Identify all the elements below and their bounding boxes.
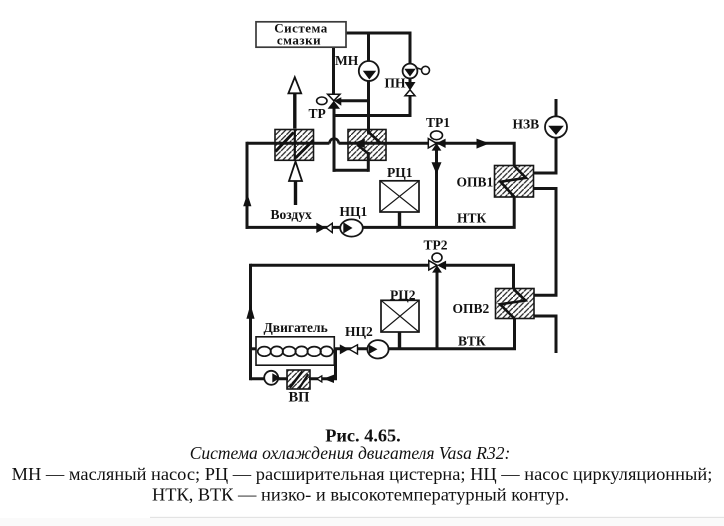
svg-text:НЗВ: НЗВ bbox=[513, 117, 540, 132]
svg-text:НЦ1: НЦ1 bbox=[340, 204, 368, 219]
svg-text:ОПВ1: ОПВ1 bbox=[457, 175, 494, 190]
svg-text:НТК: НТК bbox=[457, 211, 487, 226]
svg-text:МН: МН bbox=[335, 53, 359, 68]
svg-text:МН — масляный насос; РЦ — расш: МН — масляный насос; РЦ — расширительная… bbox=[12, 464, 713, 484]
svg-text:ПН: ПН bbox=[385, 76, 407, 91]
svg-text:Система охлаждения двигателя V: Система охлаждения двигателя Vasa R32: bbox=[190, 443, 511, 463]
svg-text:ТР: ТР bbox=[309, 106, 326, 121]
svg-text:РЦ2: РЦ2 bbox=[390, 288, 416, 303]
svg-text:НЦ2: НЦ2 bbox=[345, 324, 373, 339]
svg-text:смазки: смазки bbox=[277, 32, 321, 47]
svg-text:ВП: ВП bbox=[289, 390, 310, 406]
svg-text:РЦ1: РЦ1 bbox=[387, 165, 413, 180]
svg-text:ТР1: ТР1 bbox=[426, 115, 450, 130]
svg-text:ТР2: ТР2 bbox=[424, 238, 448, 253]
svg-text:НТК, ВТК — низко- и высокотемп: НТК, ВТК — низко- и высокотемпературный … bbox=[152, 485, 569, 505]
svg-text:ВТК: ВТК bbox=[458, 334, 486, 349]
svg-text:ОПВ2: ОПВ2 bbox=[453, 301, 490, 316]
svg-text:Воздух: Воздух bbox=[271, 207, 313, 222]
svg-text:Двигатель: Двигатель bbox=[264, 320, 328, 335]
